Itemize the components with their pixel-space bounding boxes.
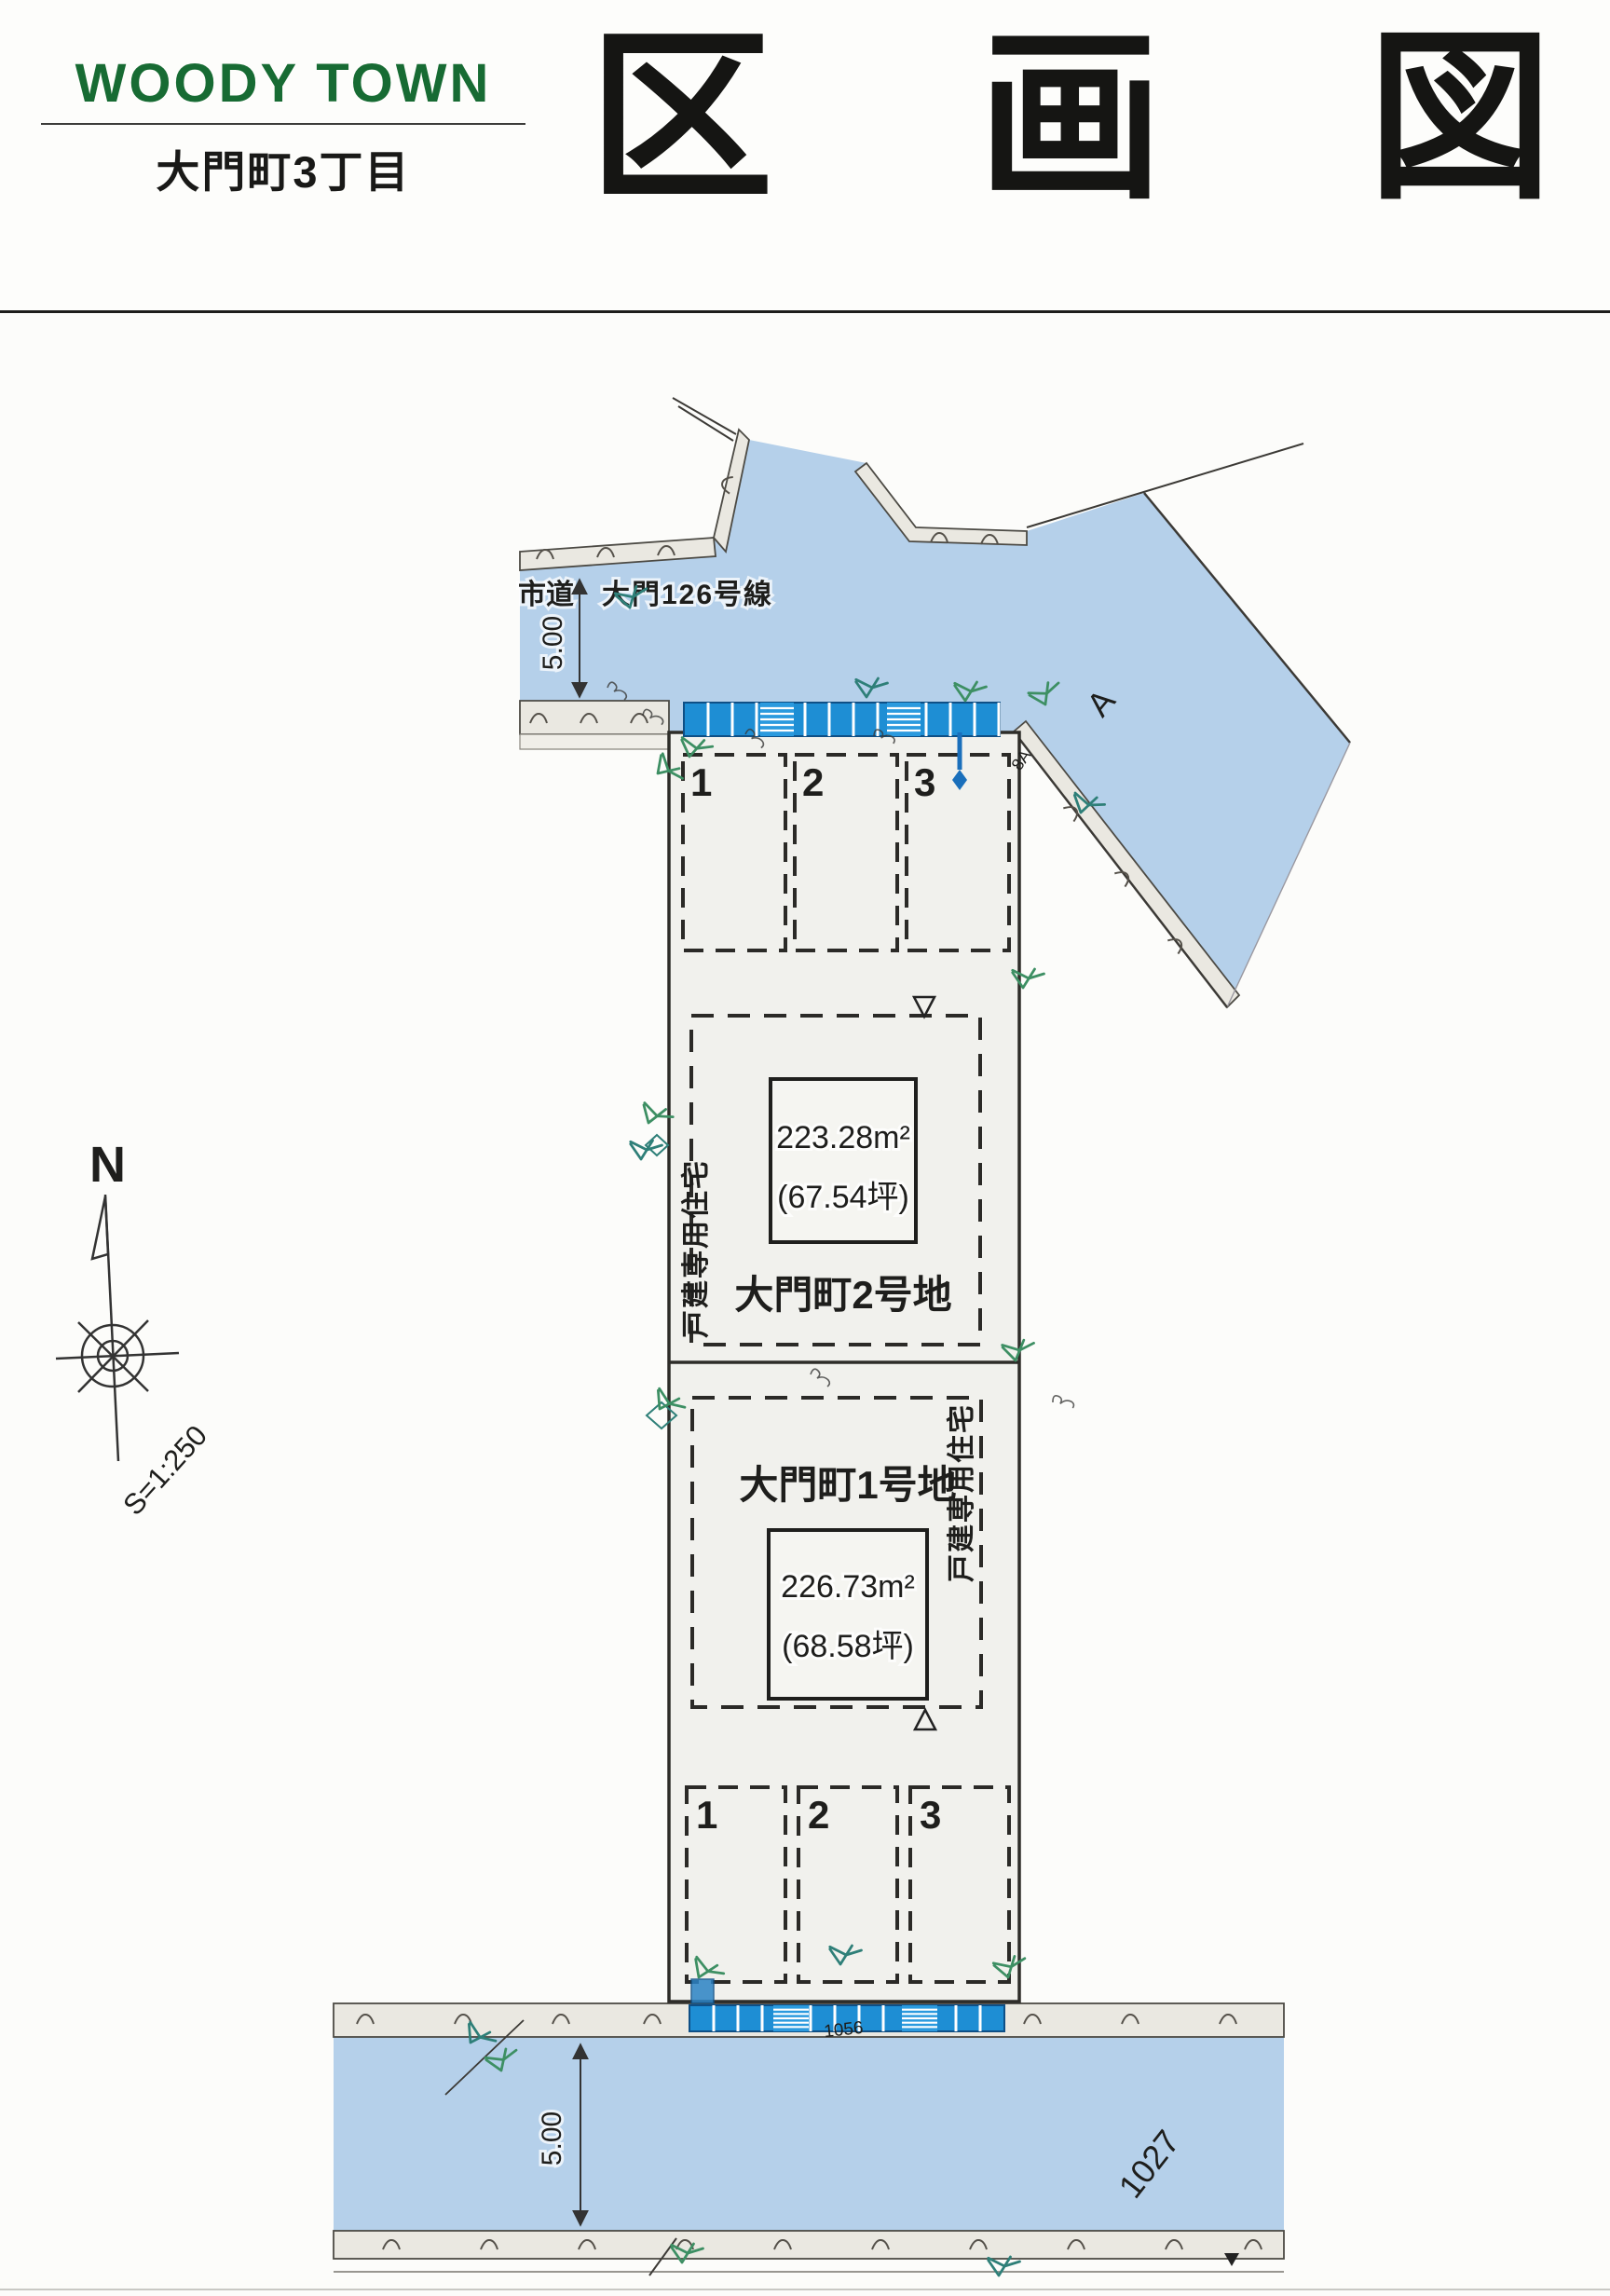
page: WOODY TOWN 大門町3丁目 区 画 図	[0, 0, 1610, 2296]
lot1-label: 大門町1号地	[739, 1463, 956, 1507]
lot2-area-m2: 223.28m²	[776, 1120, 910, 1155]
svg-text:5.00: 5.00	[537, 2111, 567, 2166]
parking-number: 1	[696, 1793, 717, 1837]
site-plan-svg: 1 2 3 1 2 3 223.28m² (67.54坪) 大門町2号地 戸建専…	[0, 0, 1610, 2296]
lot-parcel	[669, 732, 1019, 2002]
lot1-area-box	[769, 1530, 927, 1699]
compass-n-label: N	[89, 1137, 126, 1193]
lot2-area-box	[771, 1079, 916, 1242]
parking-number: 2	[808, 1793, 829, 1837]
marker-triangle-small	[1224, 2253, 1239, 2266]
road-name-label: 市道 大門126号線	[518, 579, 773, 610]
lot2-area-tsubo: (67.54坪)	[777, 1180, 909, 1215]
north-compass: N	[56, 1137, 179, 1461]
svg-text:5.00: 5.00	[538, 616, 568, 670]
lot1-area-m2: 226.73m²	[781, 1569, 915, 1605]
utility-marker-bottom	[691, 1979, 714, 2003]
parking-number: 3	[914, 760, 935, 804]
lot2-label: 大門町2号地	[734, 1273, 951, 1317]
parking-number: 3	[920, 1793, 941, 1837]
lot2-use-label: 戸建専用住宅	[680, 1159, 712, 1338]
scale-label: S=1:250	[116, 1419, 213, 1522]
parking-number: 1	[690, 760, 712, 804]
parking-number: 2	[802, 760, 824, 804]
lot1-use-label: 戸建専用住宅	[946, 1403, 977, 1582]
annotation-1056: 1056	[823, 2018, 864, 2042]
lot1-area-tsubo: (68.58坪)	[782, 1629, 914, 1664]
